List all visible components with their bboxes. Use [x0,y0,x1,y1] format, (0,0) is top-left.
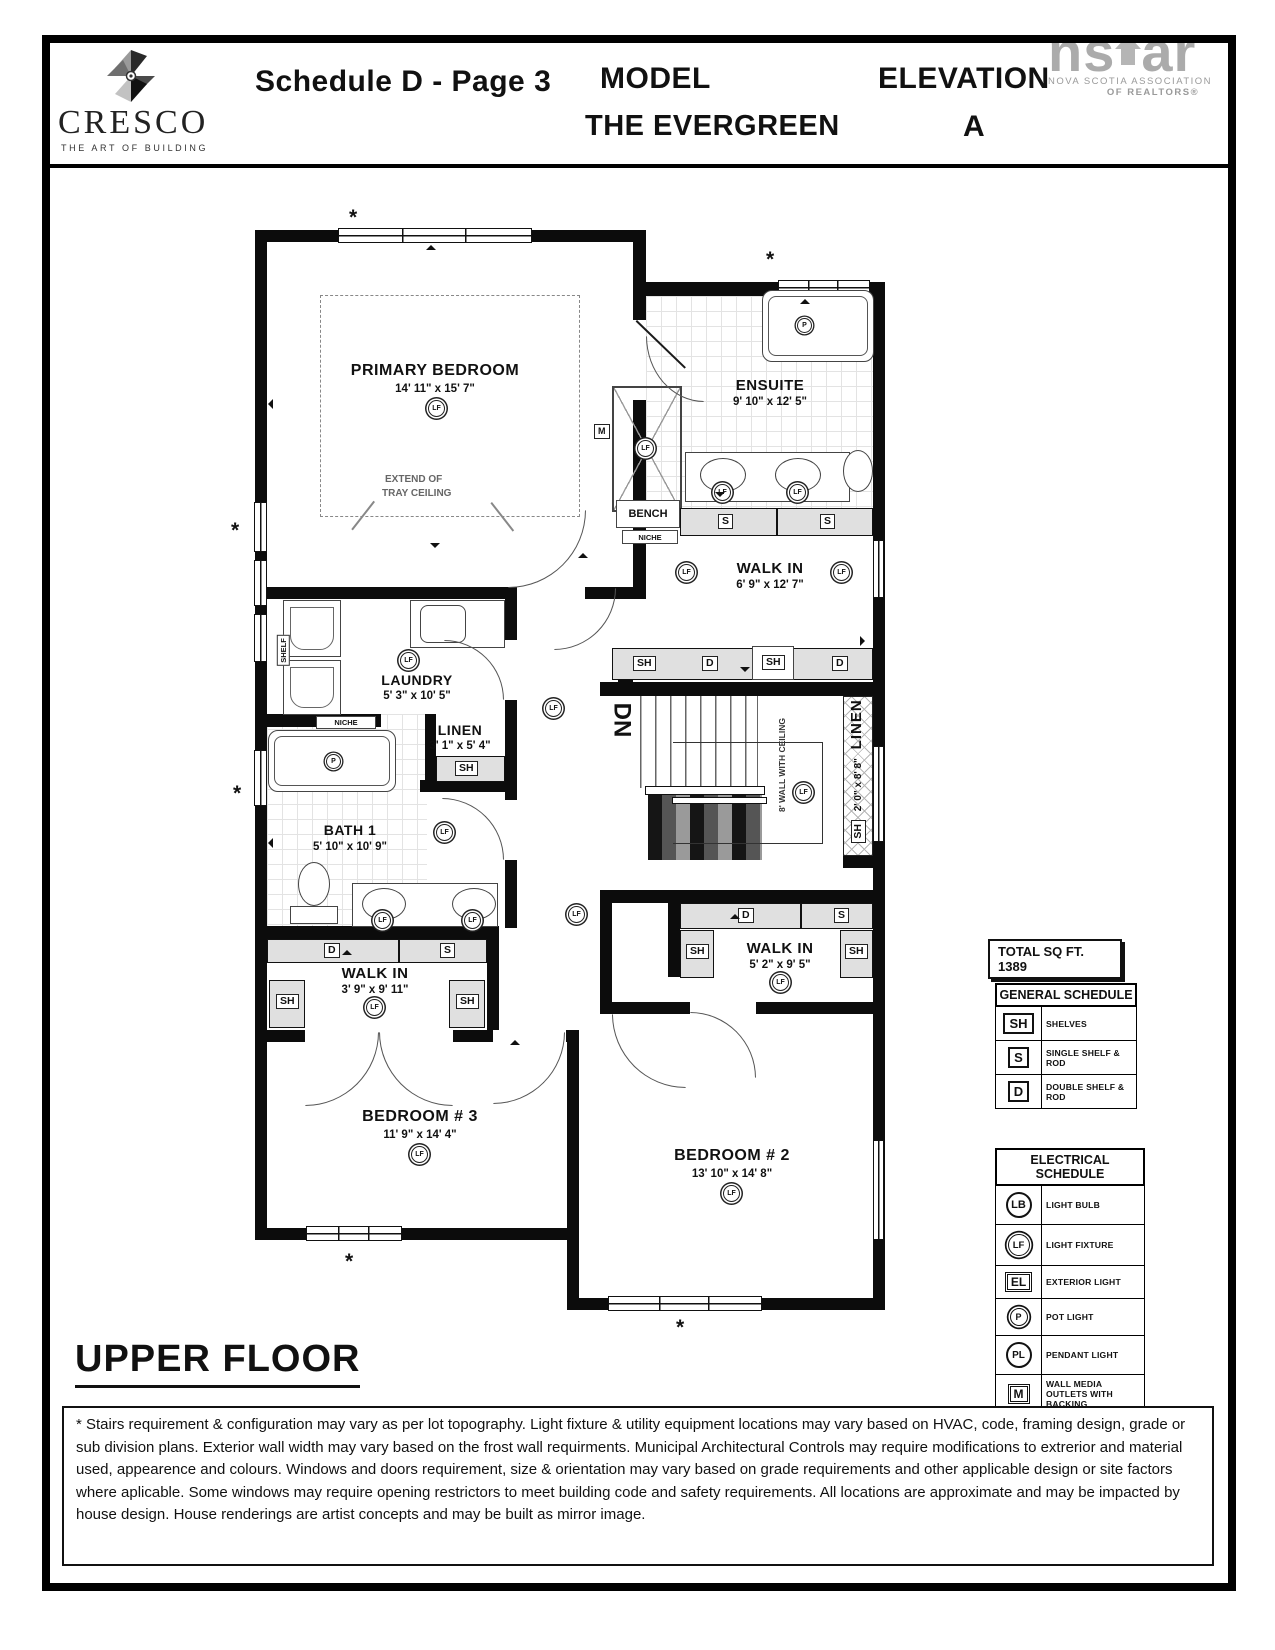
floor-title: UPPER FLOOR [75,1338,360,1388]
room-dims-walkin-bed2: 5' 2" x 9' 5" [700,959,860,971]
window [873,1140,884,1240]
tray-note-line2: TRAY CEILING [382,488,451,499]
light-fixture-symbol: LF [637,440,654,457]
legend-row: S SINGLE SHELF & ROD [996,1040,1136,1074]
shelves-symbol: SH [762,655,785,670]
light-fixture-symbol: LF [464,912,481,929]
shelves-symbol: SH [455,761,478,776]
nsar-ar-text: ar [1141,20,1196,83]
wall [566,1030,579,1042]
single-shelf-rod-symbol: S [440,943,455,958]
legend-label: SINGLE SHELF & ROD [1042,1044,1136,1072]
shelf-divider [398,939,400,963]
room-dims-linen: 3' 1" x 5' 4" [400,740,520,752]
window [338,228,532,243]
window [254,614,267,662]
window-note-asterisk: * [231,519,239,543]
model-label: MODEL [600,62,711,96]
room-label-walkin-bed2: WALK IN [700,940,860,957]
legend-label: DOUBLE SHELF & ROD [1042,1078,1136,1106]
legend-label: POT LIGHT [1042,1308,1144,1326]
shelves-symbol: SH [851,820,866,843]
room-label-linen-tall: LINEN [848,699,865,749]
room-dims-linen-tall: 2' 0" x 8' 8" [853,758,864,811]
arrow-icon [426,245,436,250]
wall [668,903,680,977]
room-label-ensuite: ENSUITE [670,377,870,394]
single-shelf-rod-symbol: S [834,908,849,923]
room-label-walkin-bed3: WALK IN [295,965,455,982]
light-fixture-symbol: LF [795,784,812,801]
light-fixture-symbol: LF [400,652,417,669]
nsar-house-icon [1115,35,1141,65]
room-dims-walkin-bed3: 3' 9" x 9' 11" [295,984,455,996]
door-arc [379,1032,453,1106]
exterior-light-symbol: EL [1007,1274,1030,1290]
wall [843,856,875,868]
linen-closet-label: SH 2' 0" x 8' 8" LINEN [848,686,866,856]
wall [255,1030,305,1042]
arrow-icon [800,299,810,304]
room-label-bath1: BATH 1 [280,822,420,838]
light-fixture-symbol: LF [833,564,850,581]
cresco-pinwheel-icon [100,48,162,111]
light-fixture-symbol: LF [772,974,789,991]
dryer [283,660,341,715]
room-label-bedroom2: BEDROOM # 2 [632,1147,832,1165]
wall [600,890,885,903]
room-dims-bedroom2: 13' 10" x 14' 8" [632,1168,832,1180]
brand-name: CRESCO [58,104,208,142]
general-schedule: GENERAL SCHEDULE SH SHELVES S SINGLE SHE… [995,983,1137,1109]
light-fixture-symbol: LF [1008,1234,1030,1256]
general-schedule-title: GENERAL SCHEDULE [995,983,1137,1007]
light-fixture-symbol: LF [374,912,391,929]
shelf-label: SHELF [277,635,290,666]
media-outlet-symbol: M [594,424,610,439]
window [873,746,884,842]
shelf-divider [776,508,778,536]
wall [633,282,646,320]
wall [600,890,612,1002]
door-arc [554,588,616,650]
wall [255,230,267,1240]
electrical-schedule-title: ELECTRICAL SCHEDULE [995,1148,1145,1186]
double-shelf-rod-symbol: D [1008,1081,1029,1102]
legend-row: P POT LIGHT [996,1298,1144,1335]
toilet [298,862,330,906]
legend-row: LF LIGHT FIXTURE [996,1224,1144,1265]
wall [453,1030,493,1042]
window [254,560,267,606]
door-arc [690,1012,756,1078]
light-fixture-symbol: LF [678,564,695,581]
light-fixture-symbol: LF [411,1146,428,1163]
ensuite-tub [762,290,874,362]
niche-label: NICHE [622,530,678,544]
door-arc [612,1014,686,1088]
shelves-symbol: SH [633,656,656,671]
pendant-light-symbol: PL [1006,1342,1032,1368]
washer [283,600,341,657]
single-shelf-rod-symbol: S [820,514,835,529]
disclaimer-text: * Stairs requirement & configuration may… [62,1406,1214,1566]
door-arc [493,1032,565,1104]
bench-label: BENCH [616,500,680,528]
toilet-tank [290,906,338,924]
tray-note-line1: EXTEND OF [385,474,442,485]
door-arc [508,510,586,588]
arrow-icon [268,399,273,409]
legend-label: PENDANT LIGHT [1042,1346,1144,1364]
window [254,750,267,806]
room-label-linen: LINEN [400,722,520,738]
door-arc [305,1032,379,1106]
arrow-icon [268,838,273,848]
double-shelf-rod-symbol: D [324,943,340,958]
legend-row: EL EXTERIOR LIGHT [996,1265,1144,1298]
arrow-icon [342,950,352,955]
elevation-value: A [963,110,985,144]
legend-row: D DOUBLE SHELF & ROD [996,1074,1136,1108]
model-name: THE EVERGREEN [585,110,840,143]
wall [600,1002,668,1014]
double-shelf-rod-symbol: D [702,656,718,671]
legend-row: SH SHELVES [996,1007,1136,1040]
legend-row: LB LIGHT BULB [996,1186,1144,1224]
wall [505,587,517,640]
light-fixture-symbol: LF [789,484,806,501]
single-shelf-rod-symbol: S [1008,1047,1029,1068]
pot-light-symbol: P [1010,1308,1028,1326]
legend-label: EXTERIOR LIGHT [1042,1273,1144,1291]
light-fixture-symbol: LF [436,824,453,841]
arrow-icon [430,543,440,548]
shelves-symbol: SH [276,994,299,1009]
brand-tagline: THE ART OF BUILDING [61,143,208,153]
nsar-logo: nsar NOVA SCOTIA ASSOCIATION OF REALTORS… [1048,28,1258,98]
media-outlet-symbol: M [1010,1386,1028,1402]
nsar-subtitle-1: NOVA SCOTIA ASSOCIATION [1048,76,1258,87]
header-divider [50,164,1228,168]
legend-label: SHELVES [1042,1015,1136,1033]
light-fixture-symbol: LF [545,700,562,717]
arrow-icon [578,553,588,558]
wall [255,587,505,599]
light-fixture-symbol: LF [723,1185,740,1202]
stairs-down-label: DN [607,703,635,738]
arrow-icon [860,636,865,646]
room-label-bedroom3: BEDROOM # 3 [320,1108,520,1126]
window-note-asterisk: * [233,782,241,806]
arrow-icon [730,914,740,919]
arrow-icon [510,1040,520,1045]
room-dims-bedroom3: 11' 9" x 14' 4" [320,1129,520,1141]
shelves-symbol: SH [456,994,479,1009]
window [254,502,267,552]
wall [487,939,499,1030]
wall [567,1030,579,1310]
window-note-asterisk: * [766,248,774,272]
pot-light-symbol: P [326,754,341,769]
elevation-label: ELEVATION [878,62,1050,96]
arrow-icon [740,667,750,672]
double-shelf-rod-symbol: D [738,908,754,923]
window [306,1226,402,1241]
stair-railing [645,786,765,795]
window-note-asterisk: * [345,1250,353,1274]
laundry-sink [420,605,466,643]
floor-plan-sheet: nsar NOVA SCOTIA ASSOCIATION OF REALTORS… [0,0,1275,1650]
double-shelf-rod-symbol: D [832,656,848,671]
light-fixture-symbol: LF [366,999,383,1016]
total-sqft-box: TOTAL SQ FT. 1389 [988,939,1122,979]
wall [756,1002,875,1014]
pot-light-symbol: P [797,318,812,333]
shelves-symbol: SH [845,944,868,959]
room-label-laundry: LAUNDRY [337,672,497,688]
window-note-asterisk: * [676,1316,684,1340]
schedule-title: Schedule D - Page 3 [255,65,551,99]
wall [668,1002,690,1014]
wall-height-note: 8' WALL WITH CEILING [777,718,787,812]
toilet [843,450,873,492]
window-note-asterisk: * [349,206,357,230]
nsar-ns-text: ns [1048,20,1115,83]
room-label-primary-bedroom: PRIMARY BEDROOM [310,362,560,380]
room-dims-primary-bedroom: 14' 11" x 15' 7" [310,383,560,395]
legend-label: LIGHT FIXTURE [1042,1236,1144,1254]
nsar-wordmark: nsar [1048,28,1258,76]
legend-row: PL PENDANT LIGHT [996,1335,1144,1374]
single-shelf-rod-symbol: S [718,514,733,529]
wall [255,1228,577,1240]
room-dims-ensuite: 9' 10" x 12' 5" [670,396,870,408]
window [608,1296,762,1311]
shelf-divider [800,903,802,929]
nsar-subtitle-2: OF REALTORS® [1048,87,1258,98]
tray-ceiling-outline [320,295,580,517]
room-dims-bath1: 5' 10" x 10' 9" [280,841,420,853]
light-fixture-symbol: LF [568,906,585,923]
niche-label: NICHE [316,716,376,729]
arrow-icon [715,492,725,497]
room-dims-laundry: 5' 3" x 10' 5" [337,690,497,702]
stair-railing [672,797,767,804]
light-fixture-symbol: LF [428,400,445,417]
shelves-symbol: SH [1003,1013,1033,1034]
wall [505,860,517,928]
legend-label: LIGHT BULB [1042,1196,1144,1214]
light-bulb-symbol: LB [1006,1192,1032,1218]
wall [255,926,499,939]
window [873,540,884,598]
shelves-symbol: SH [686,944,709,959]
